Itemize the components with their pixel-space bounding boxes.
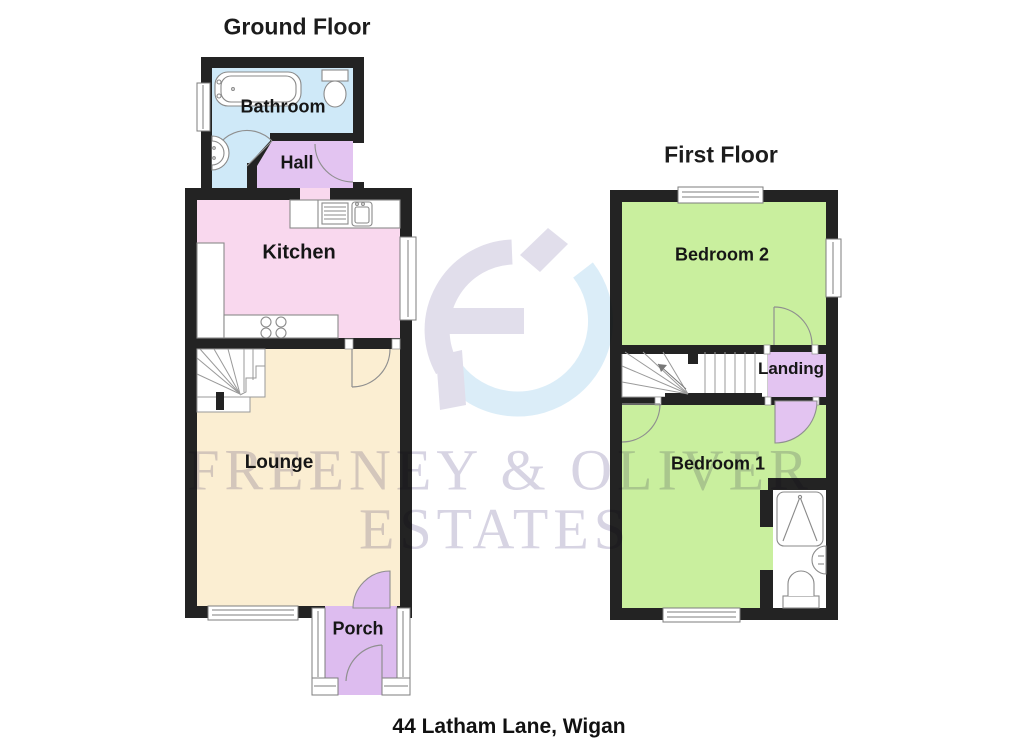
hob-icon (261, 317, 271, 327)
floorplan-drawing (0, 0, 1020, 741)
bathroom-label: Bathroom (241, 97, 326, 118)
ff-room-bedroom2 (622, 202, 826, 345)
bedroom1-label: Bedroom 1 (671, 454, 765, 475)
bedroom2-top-window (678, 187, 763, 203)
kitchen-label: Kitchen (262, 242, 335, 265)
gf-hall-kitchen-opening (300, 188, 330, 200)
ground-floor-title: Ground Floor (224, 14, 371, 41)
ensuite-toilet-icon (783, 596, 819, 608)
property-address: 44 Latham Lane, Wigan (392, 715, 625, 739)
kitchen-counter-left (197, 243, 224, 338)
landing-label: Landing (758, 359, 824, 379)
porch-label: Porch (332, 619, 383, 640)
first-floor-title: First Floor (664, 142, 778, 169)
lounge-label: Lounge (245, 452, 314, 474)
stairs-newel-post (216, 392, 224, 410)
toilet-icon (322, 70, 348, 81)
gf-door-jamb (345, 339, 353, 349)
ff-ensuite (773, 490, 826, 608)
lounge-window (208, 606, 298, 620)
gf-backdoor-opening (353, 143, 364, 182)
gf-divider-wall (185, 338, 347, 349)
gf-door-jamb (392, 339, 400, 349)
floorplan-page: FREENEY & OLIVER ESTATES Ground Floor Fi… (0, 0, 1020, 741)
drainer-icon (322, 203, 348, 224)
bedroom1-window (663, 608, 740, 622)
hall-label: Hall (280, 153, 313, 174)
bedroom2-label: Bedroom 2 (675, 245, 769, 266)
